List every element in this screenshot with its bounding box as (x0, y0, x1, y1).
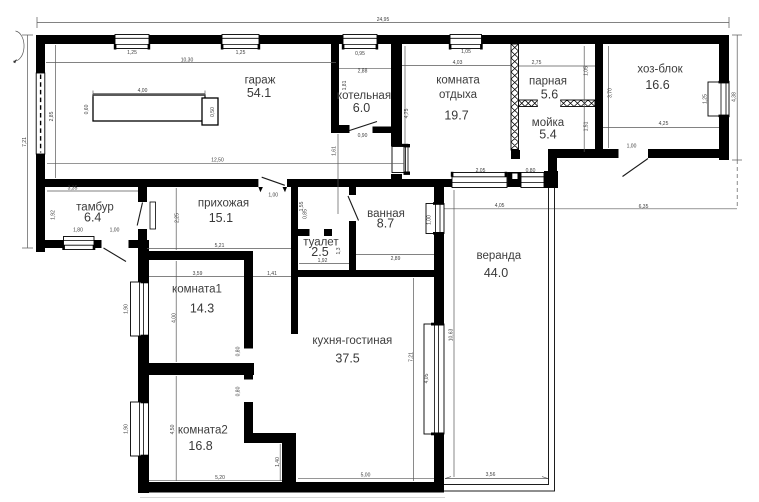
svg-text:0,50: 0,50 (210, 107, 216, 117)
svg-text:1,92: 1,92 (51, 210, 57, 220)
svg-text:комната1: комната1 (172, 284, 222, 296)
svg-text:5.6: 5.6 (541, 88, 558, 102)
svg-text:прихожая: прихожая (198, 197, 249, 209)
svg-text:4,75: 4,75 (404, 108, 410, 118)
svg-text:3,35: 3,35 (68, 186, 78, 192)
svg-text:44.0: 44.0 (484, 266, 508, 280)
svg-text:6.4: 6.4 (84, 211, 101, 225)
svg-text:3,59: 3,59 (193, 271, 203, 277)
svg-text:1,40: 1,40 (275, 457, 281, 467)
svg-text:37.5: 37.5 (335, 351, 359, 365)
svg-text:1,00: 1,00 (110, 228, 120, 234)
svg-text:4,00: 4,00 (138, 88, 148, 94)
svg-text:комната2: комната2 (178, 424, 228, 436)
svg-text:0,80: 0,80 (526, 168, 536, 174)
svg-text:1,05: 1,05 (584, 66, 590, 76)
svg-text:0,60: 0,60 (84, 104, 90, 114)
svg-text:4,05: 4,05 (495, 203, 505, 209)
svg-text:4,00: 4,00 (172, 313, 178, 323)
svg-text:кухня-гостиная: кухня-гостиная (312, 335, 392, 347)
svg-text:16.8: 16.8 (188, 439, 212, 453)
svg-text:2,05: 2,05 (476, 168, 486, 174)
svg-text:1,25: 1,25 (127, 50, 137, 56)
svg-text:7,21: 7,21 (409, 352, 415, 362)
svg-text:4,25: 4,25 (659, 121, 669, 127)
svg-text:0,80: 0,80 (236, 386, 242, 396)
svg-text:2,75: 2,75 (532, 60, 542, 66)
svg-text:6,35: 6,35 (639, 204, 649, 210)
svg-text:гараж: гараж (245, 75, 276, 87)
svg-text:5,00: 5,00 (361, 473, 371, 479)
svg-text:54.1: 54.1 (247, 86, 271, 100)
svg-text:4,50: 4,50 (170, 424, 176, 434)
svg-text:1,80: 1,80 (73, 228, 83, 234)
svg-text:6.0: 6.0 (353, 101, 370, 115)
svg-text:2,89: 2,89 (391, 256, 401, 262)
svg-text:4,38: 4,38 (732, 92, 738, 102)
svg-text:2,85: 2,85 (49, 111, 55, 121)
svg-text:4,03: 4,03 (453, 60, 463, 66)
svg-text:парная: парная (529, 76, 567, 88)
svg-text:1,61: 1,61 (332, 146, 338, 156)
svg-text:15.1: 15.1 (209, 211, 233, 225)
svg-text:19.7: 19.7 (444, 109, 468, 123)
svg-text:4,05: 4,05 (424, 373, 430, 383)
svg-text:хоз-блок: хоз-блок (637, 64, 683, 76)
svg-text:1,00: 1,00 (627, 144, 637, 150)
svg-text:1,25: 1,25 (236, 50, 246, 56)
svg-text:комната: комната (436, 75, 480, 87)
svg-text:10,63: 10,63 (449, 329, 455, 342)
svg-text:котельная: котельная (337, 90, 391, 102)
svg-text:1,05: 1,05 (461, 49, 471, 55)
svg-text:7,21: 7,21 (22, 137, 28, 147)
svg-text:10,30: 10,30 (181, 57, 194, 63)
svg-text:0,90: 0,90 (358, 133, 368, 139)
svg-text:1,25: 1,25 (703, 94, 709, 104)
svg-text:0,85: 0,85 (303, 209, 309, 219)
svg-text:14.3: 14.3 (190, 302, 214, 316)
svg-text:8.7: 8.7 (377, 216, 394, 230)
svg-text:1,00: 1,00 (427, 215, 433, 225)
svg-text:1,90: 1,90 (124, 304, 130, 314)
svg-text:16.6: 16.6 (645, 78, 669, 92)
svg-text:1,00: 1,00 (268, 193, 278, 199)
svg-text:веранда: веранда (476, 250, 521, 262)
svg-text:3,70: 3,70 (608, 88, 614, 98)
svg-text:1,41: 1,41 (267, 271, 277, 277)
svg-text:3,56: 3,56 (486, 472, 496, 478)
svg-text:1,90: 1,90 (124, 424, 130, 434)
svg-text:5.4: 5.4 (539, 128, 556, 142)
svg-text:2,88: 2,88 (358, 69, 368, 75)
svg-text:5,21: 5,21 (215, 243, 225, 249)
svg-text:1,51: 1,51 (584, 121, 590, 131)
svg-text:2.5: 2.5 (311, 245, 328, 259)
svg-text:0,95: 0,95 (355, 51, 365, 57)
svg-text:2,25: 2,25 (175, 213, 181, 223)
svg-text:24,95: 24,95 (377, 17, 390, 23)
svg-text:5,20: 5,20 (215, 475, 225, 481)
svg-text:отдыха: отдыха (439, 89, 478, 101)
svg-text:12,50: 12,50 (211, 158, 224, 164)
svg-text:0,80: 0,80 (236, 346, 242, 356)
